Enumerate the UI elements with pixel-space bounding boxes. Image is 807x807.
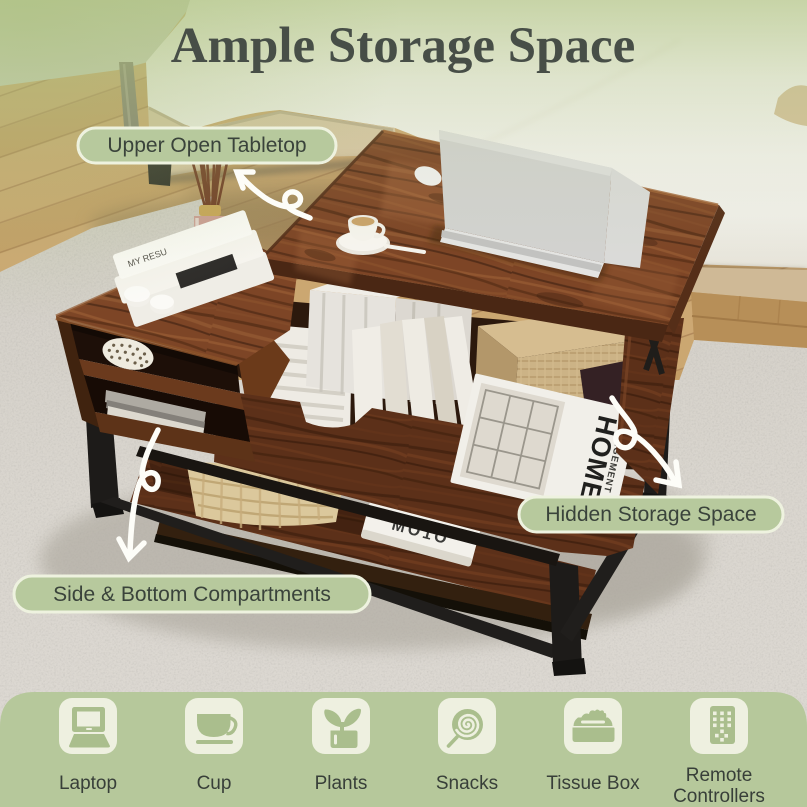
svg-text:Cup: Cup xyxy=(197,773,232,794)
svg-text:Ample Storage Space: Ample Storage Space xyxy=(171,18,636,74)
svg-text:Snacks: Snacks xyxy=(436,773,498,794)
svg-text:Hidden Storage Space: Hidden Storage Space xyxy=(545,503,756,526)
svg-text:Upper Open Tabletop: Upper Open Tabletop xyxy=(107,134,306,157)
svg-text:Side & Bottom Compartments: Side & Bottom Compartments xyxy=(53,583,331,606)
svg-text:Laptop: Laptop xyxy=(59,773,117,794)
svg-text:Tissue Box: Tissue Box xyxy=(546,773,640,794)
svg-text:Plants: Plants xyxy=(315,773,368,794)
svg-text:Controllers: Controllers xyxy=(673,786,765,807)
svg-text:Remote: Remote xyxy=(686,765,753,786)
